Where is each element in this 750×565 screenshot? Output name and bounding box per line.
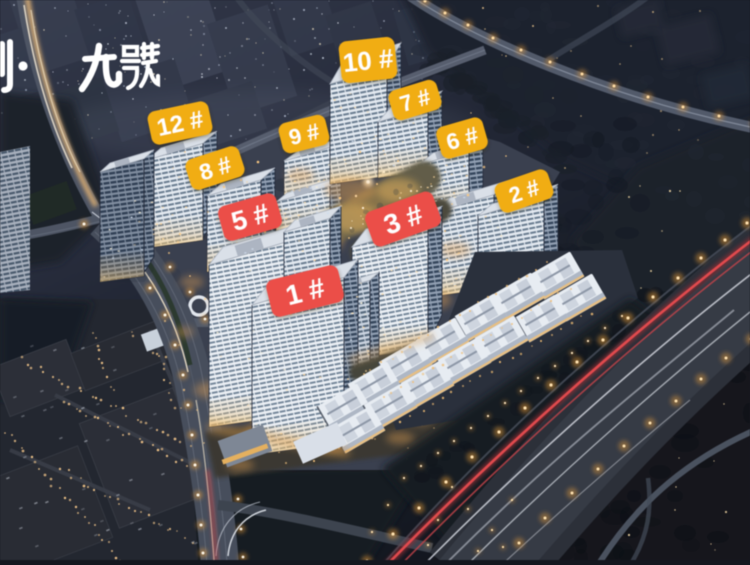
svg-text:10 #: 10 # (341, 43, 395, 78)
